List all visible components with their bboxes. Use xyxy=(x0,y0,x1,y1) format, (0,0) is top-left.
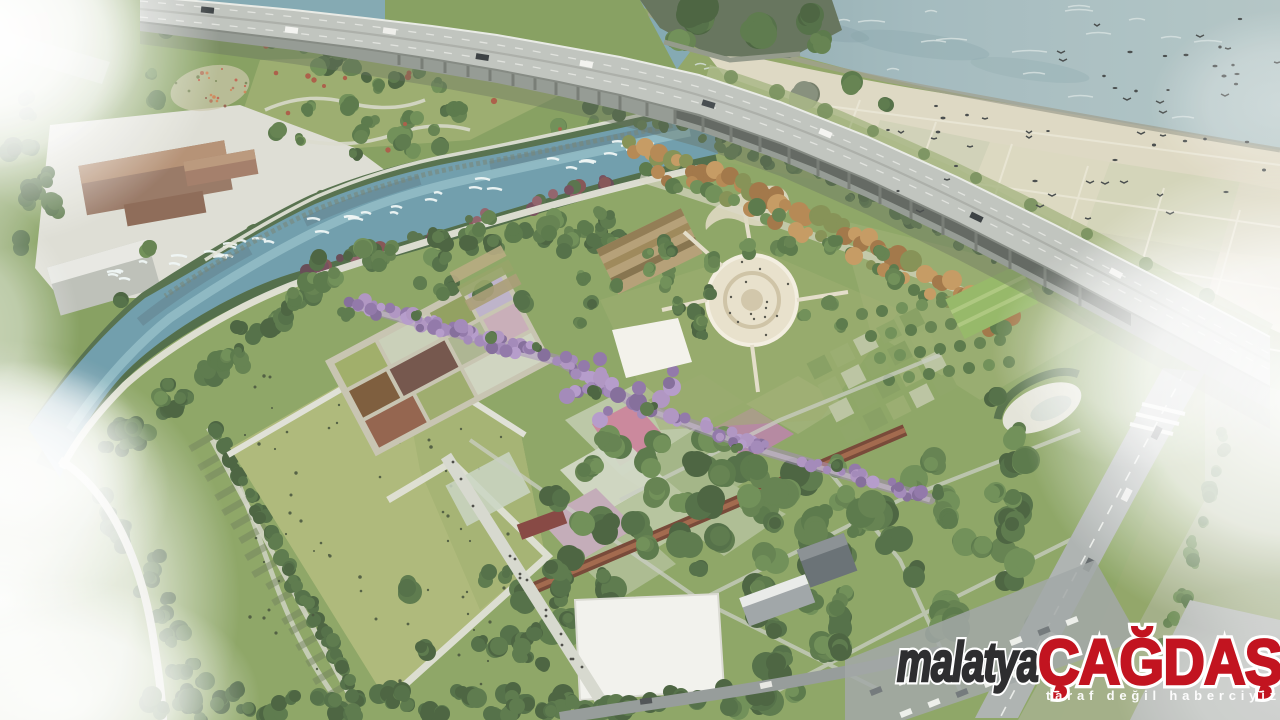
svg-text:malatya: malatya xyxy=(897,631,1038,694)
svg-text:ÇAĞDAŞ: ÇAĞDAŞ xyxy=(1038,626,1280,697)
svg-text:taraf değil haberciyiz: taraf değil haberciyiz xyxy=(1046,688,1280,703)
